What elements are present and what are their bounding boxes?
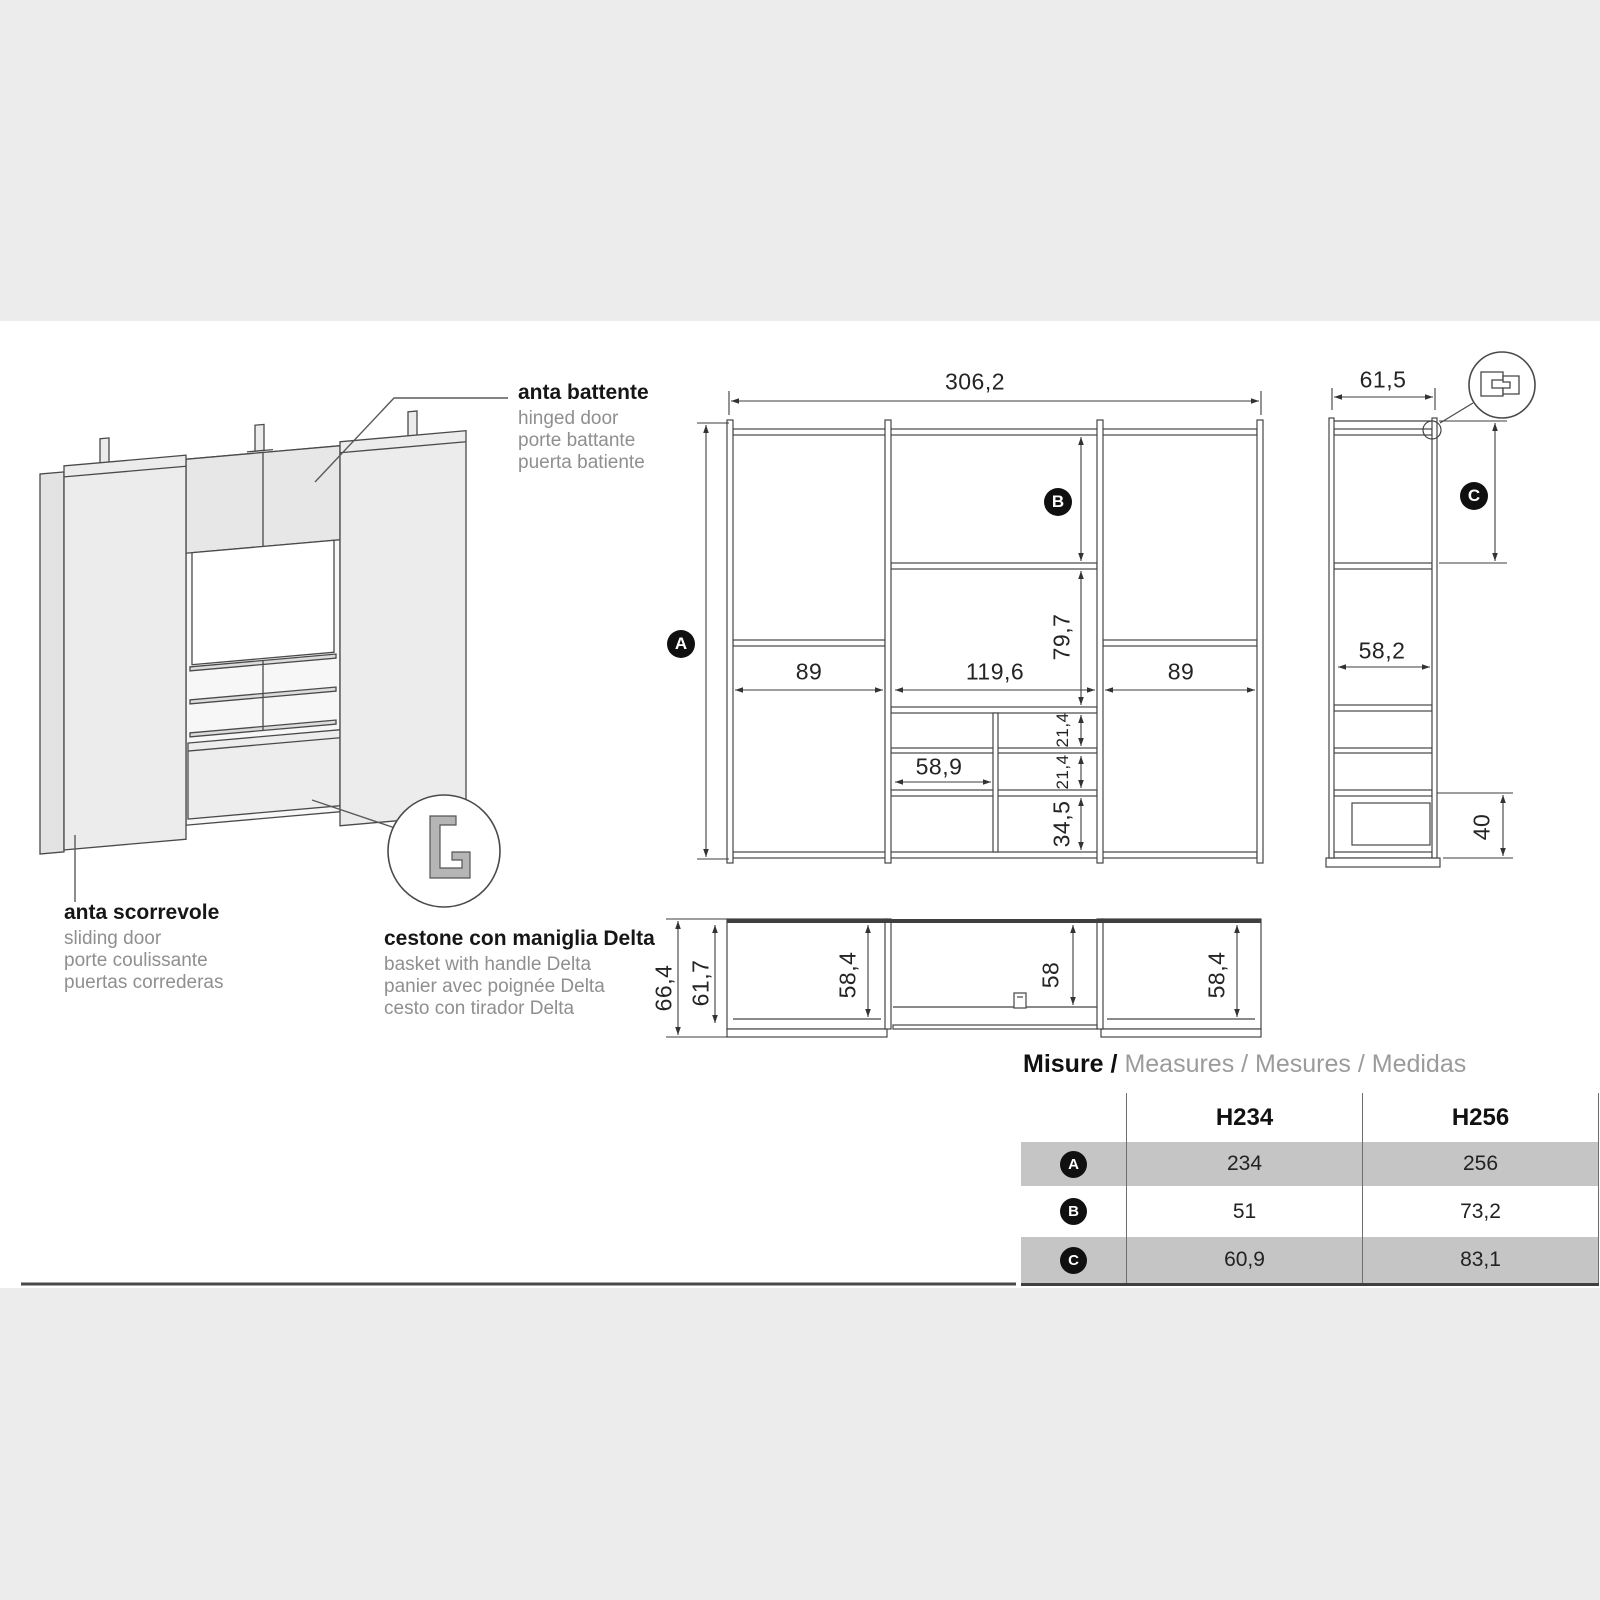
annotation-sliding-door: anta scorrevole sliding door porte couli…: [64, 902, 223, 994]
front-view-dimensions: [697, 391, 1261, 859]
dim-side-shelf-depth: 58,2: [1359, 638, 1406, 665]
table-header-row: H234 H256: [1021, 1093, 1599, 1142]
annotation-line: cesto con tirador Delta: [384, 998, 655, 1020]
annotation-basket: cestone con maniglia Delta basket with h…: [384, 928, 655, 1020]
table-header-h234: H234: [1126, 1093, 1362, 1142]
dim-front-bottom-height: 34,5: [1049, 801, 1076, 848]
catalog-page: 306,2 89 119,6 89 58,9 79,7 21,4 21,4 34…: [0, 0, 1600, 1600]
table-header-h256: H256: [1362, 1093, 1599, 1142]
dim-front-middle-width: 119,6: [966, 659, 1024, 686]
dim-front-shelf-gap-2: 21,4: [1053, 754, 1073, 789]
annotation-hinged-door: anta battente hinged door porte battante…: [518, 382, 649, 474]
technical-drawing: [0, 0, 1600, 1600]
annotation-line: puertas correderas: [64, 972, 223, 994]
marker-a-badge: A: [667, 630, 695, 658]
annotation-line: hinged door: [518, 408, 649, 430]
measures-title-main: Misure /: [1023, 1050, 1117, 1078]
dim-front-middle-height: 79,7: [1049, 614, 1076, 661]
cell-b-h234: 51: [1126, 1186, 1362, 1237]
dim-plan-middle-width: 58: [1038, 962, 1065, 989]
annotation-line: basket with handle Delta: [384, 954, 655, 976]
dim-front-left-width: 89: [796, 659, 823, 686]
wardrobe-isometric: [40, 398, 508, 907]
dim-front-right-width: 89: [1168, 659, 1195, 686]
dim-front-shelf-gap-1: 21,4: [1053, 712, 1073, 747]
measures-title-sub: Measures / Mesures / Medidas: [1124, 1050, 1466, 1078]
row-b-badge: B: [1060, 1198, 1087, 1225]
front-view: [727, 420, 1263, 863]
cell-b-h256: 73,2: [1362, 1186, 1599, 1237]
side-view-drawer: [1352, 803, 1430, 845]
cell-c-h234: 60,9: [1126, 1237, 1362, 1283]
measures-table: H234 H256 A 234 256 B 51 73,2 C 60,9 83,…: [1021, 1093, 1599, 1286]
table-row: C 60,9 83,1: [1021, 1237, 1599, 1286]
plan-right-door: [1101, 1029, 1261, 1037]
plan-handle-icon: [1014, 993, 1026, 1008]
table-row: A 234 256: [1021, 1142, 1599, 1186]
table-row: B 51 73,2: [1021, 1186, 1599, 1237]
annotation-line: puerta batiente: [518, 452, 649, 474]
plan-left-door: [727, 1029, 887, 1037]
table-header-empty: [1021, 1093, 1126, 1142]
annotation-title: anta scorrevole: [64, 902, 223, 924]
annotation-line: porte coulissante: [64, 950, 223, 972]
annotation-line: panier avec poignée Delta: [384, 976, 655, 998]
marker-b-badge: B: [1044, 488, 1072, 516]
dim-side-total-depth: 61,5: [1360, 367, 1407, 394]
plan-view: [727, 919, 1261, 1037]
annotation-line: porte battante: [518, 430, 649, 452]
cell-a-h234: 234: [1126, 1142, 1362, 1186]
side-view-dimensions: [1332, 388, 1513, 858]
measures-title: Misure / Measures / Mesures / Medidas: [1023, 1050, 1466, 1079]
dim-plan-right-width: 58,4: [1204, 952, 1231, 999]
row-a-badge: A: [1060, 1151, 1087, 1178]
row-c-badge: C: [1060, 1247, 1087, 1274]
delta-handle-detail: [388, 795, 500, 907]
dim-front-total-width: 306,2: [945, 369, 1005, 396]
annotation-line: sliding door: [64, 928, 223, 950]
annotation-title: anta battente: [518, 382, 649, 404]
dim-front-basket-width: 58,9: [916, 754, 963, 781]
annotation-title: cestone con maniglia Delta: [384, 928, 655, 950]
marker-c-badge: C: [1460, 482, 1488, 510]
cell-a-h256: 256: [1362, 1142, 1599, 1186]
dim-side-drawer-height: 40: [1469, 814, 1496, 841]
dim-plan-left-width: 58,4: [835, 952, 862, 999]
side-view-joint-detail: [1440, 352, 1535, 423]
cell-c-h256: 83,1: [1362, 1237, 1599, 1283]
dim-plan-inner-depth: 61,7: [688, 960, 715, 1007]
